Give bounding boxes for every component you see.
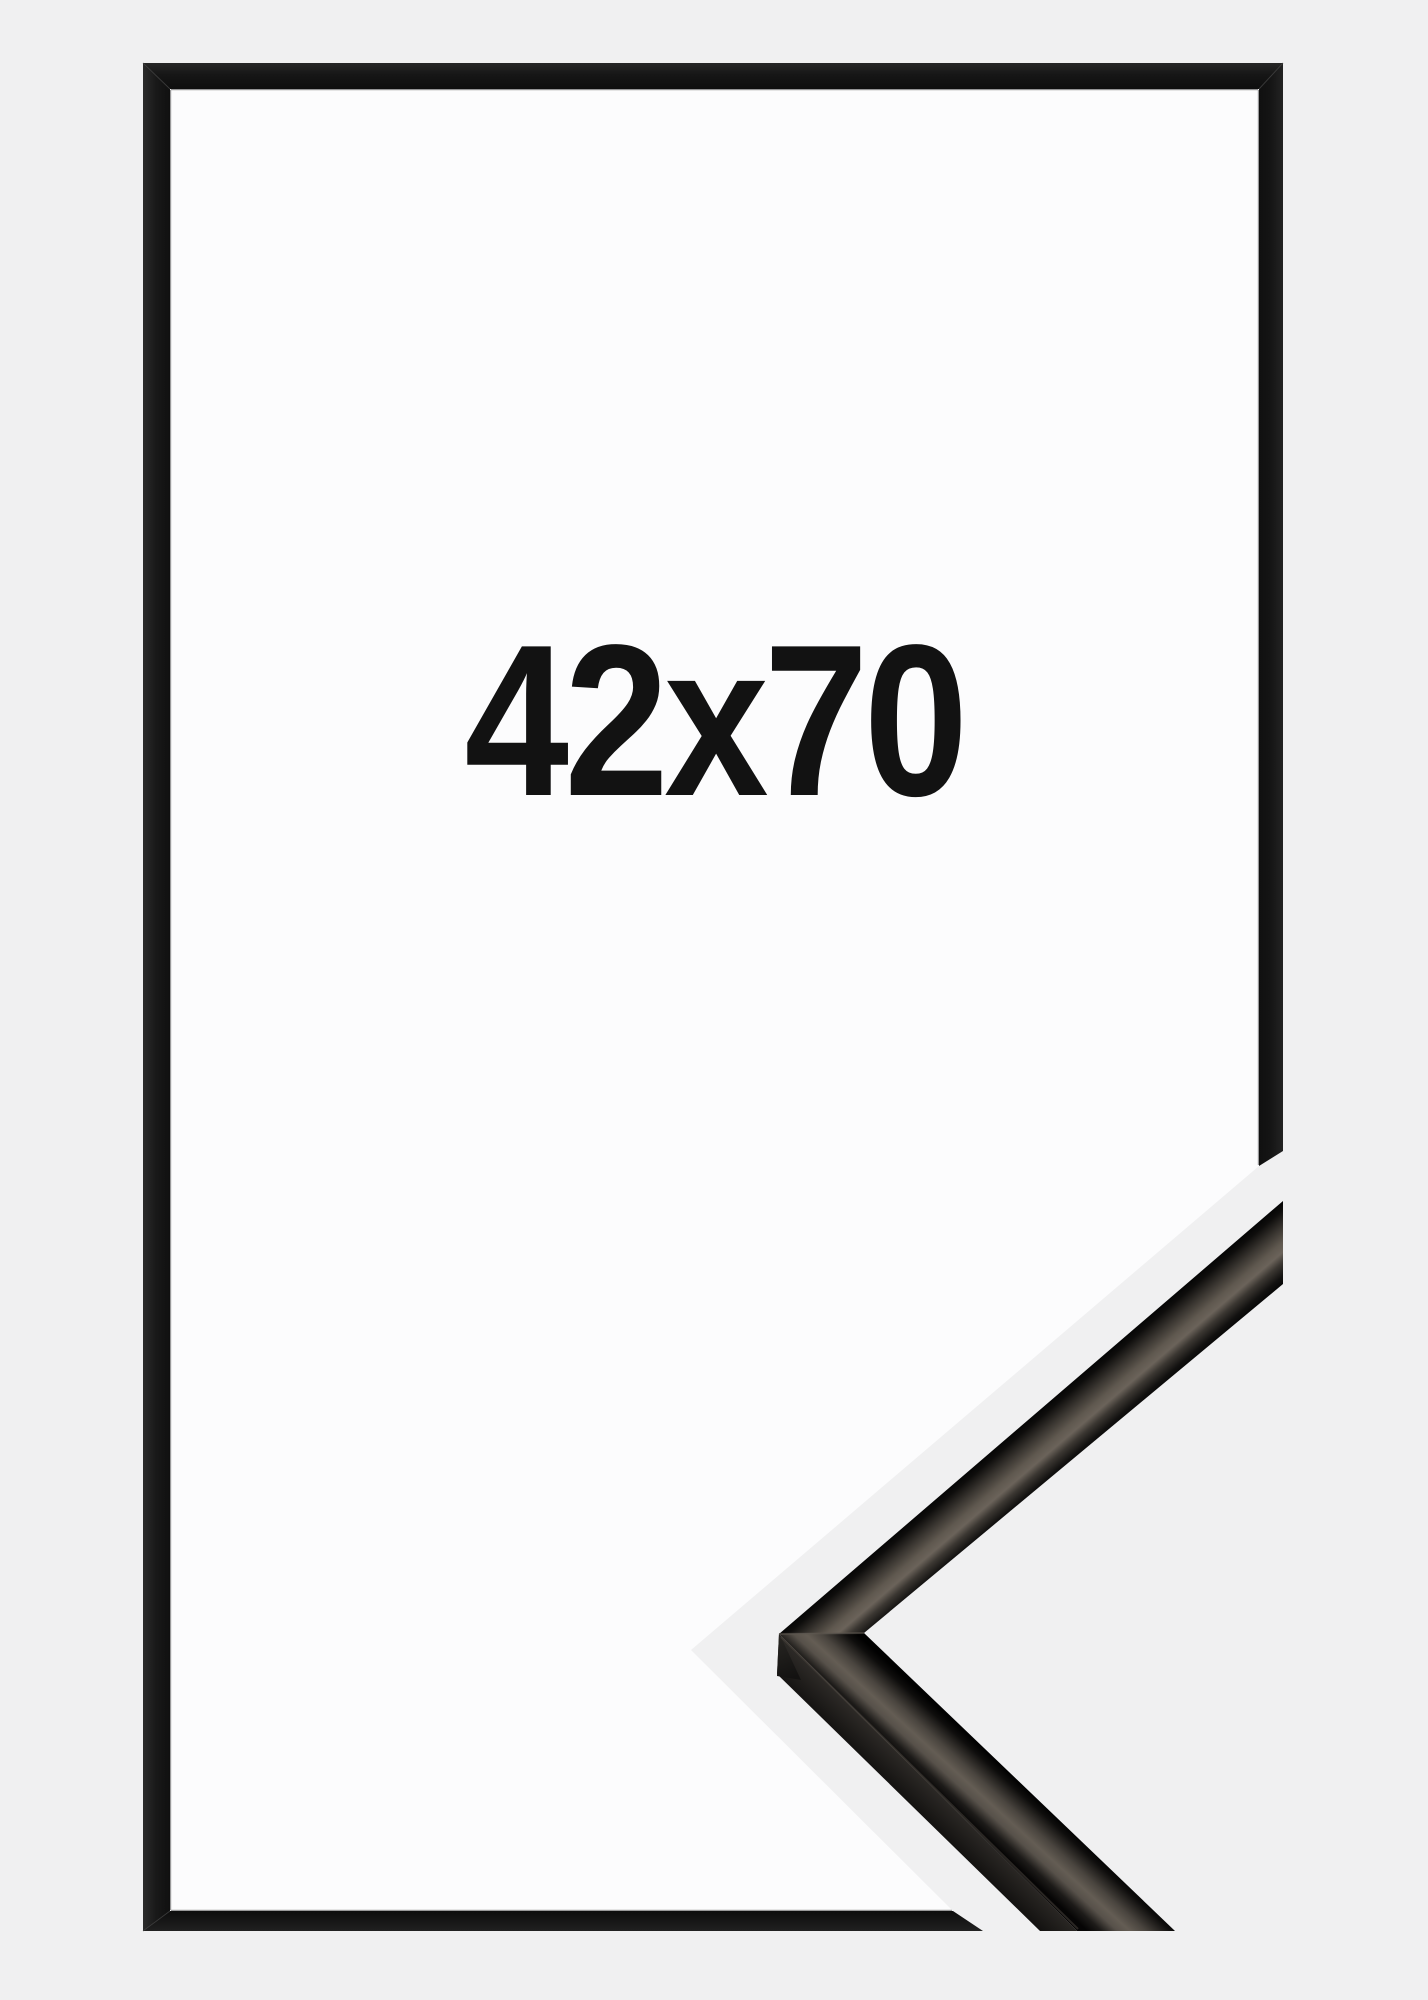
size-label: 42x70 [93,612,1335,828]
frame-top-bar [143,63,1283,89]
frame-render [0,0,1428,2000]
frame-left-bar [143,63,170,1931]
frame-bottom-bar-cut [143,1911,983,1931]
frame-inside-paper [170,90,1259,1911]
profile-miter-seam [779,1633,864,1634]
product-image-canvas: 42x70 [0,0,1428,2000]
